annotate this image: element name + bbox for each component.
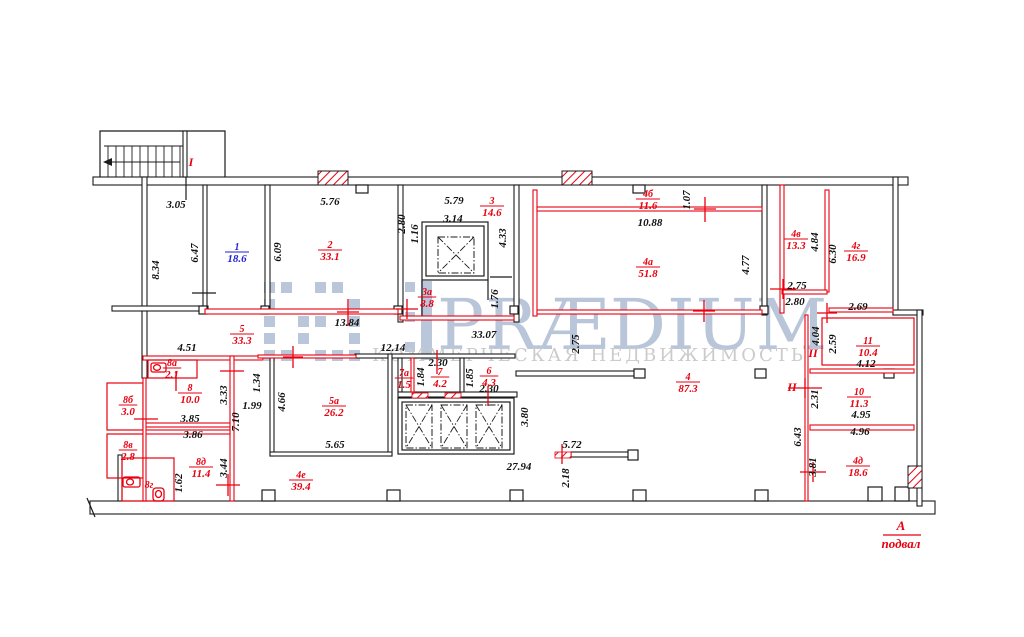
room-label: 487.3 [676,372,700,395]
floor-plan-canvas: PRÆDIUM КОММЕРЧЕСКАЯ НЕДВИЖИМОСТЬ [0,0,1024,637]
dimension-label: 2.80 [396,214,408,235]
room-number: 6 [487,366,492,377]
dimension-label: 4.51 [176,342,196,354]
room-label: 64.3 [480,366,499,389]
dimension-label: 27.94 [506,461,532,473]
dimension-label: 3.86 [182,429,203,441]
dimension-label: 3.80 [519,407,531,428]
dimension-label: 5.76 [320,196,340,208]
room-number: 3а [421,287,432,298]
dimension-label: 5.72 [562,439,582,451]
room-label: 5а26.2 [322,396,346,419]
room-label: 810.0 [178,383,202,406]
section-caption: подвал [882,536,921,551]
room-label: 8в2.8 [119,440,138,463]
dimension-label: 3.85 [179,413,200,425]
room-area: 14.6 [482,207,502,219]
room-number: 8а [167,358,177,369]
room-label: 533.3 [230,324,254,347]
dimension-label: 7.10 [230,412,242,432]
room-label: 1011.3 [847,387,871,410]
dimension-label: 5.65 [325,439,345,451]
room-label: 74.2 [431,367,450,390]
room-area: 26.2 [323,407,344,419]
room-area: 39.4 [290,481,311,493]
room-area: 8.8 [420,298,434,310]
dimension-label: 2.75 [786,280,807,292]
room-number: 8д [196,457,206,468]
room-number: 7а [399,368,409,379]
dimension-label: 1.62 [173,473,185,493]
room-label: 8б3.0 [119,395,138,418]
room-area: 3.0 [120,406,135,418]
dimension-label: 1.34 [251,373,263,393]
room-number: 8в [123,440,133,451]
room-area: 13.3 [786,240,806,252]
room-label: 4г16.9 [844,241,868,264]
room-label: 8г [145,480,154,491]
dimension-label: 4.77 [740,255,752,276]
dimension-label: 2.80 [784,296,805,308]
room-number: 8 [188,383,193,394]
room-label: 118.6 [225,242,249,265]
room-area: 10.0 [180,394,200,406]
dimension-label: 3.81 [807,457,819,477]
room-area: 4.3 [481,377,496,389]
room-area: 33.1 [319,251,339,263]
dimension-label: 2.18 [560,468,572,489]
room-number: 4в [790,229,801,240]
dimension-label: 33.07 [471,329,497,341]
room-number: 3 [489,196,495,207]
room-label: 233.1 [318,240,342,263]
room-number: 4г [851,241,861,252]
dimension-label: 1.16 [409,224,421,244]
room-number: 8г [145,480,154,491]
entry-marker: II [807,346,819,360]
dimension-label: 2.59 [827,334,839,355]
dimension-label: 1.99 [242,400,262,412]
room-area: 33.3 [231,335,252,347]
section-marker: А подвал [882,518,921,551]
dimension-label: 13.84 [335,317,360,329]
dimension-label: 3.44 [218,458,230,479]
entry-marker: I [188,155,195,169]
dimension-label: 3.05 [165,199,186,211]
dimension-label: 4.96 [849,426,870,438]
room-label: 314.6 [480,196,504,219]
room-label: 1110.4 [856,336,880,359]
room-area: 18.6 [848,467,868,479]
room-label: 4д18.6 [846,456,870,479]
room-number: 1 [235,242,240,253]
room-number: 11 [863,336,872,347]
room-area: 11.3 [850,398,869,410]
room-number: 4а [642,257,653,268]
dimension-label: 10.88 [638,217,663,229]
floor-plan-drawing: PRÆDIUM КОММЕРЧЕСКАЯ НЕДВИЖИМОСТЬ [0,0,1024,637]
dimension-label: 4.12 [855,358,876,370]
room-label: 4е39.4 [289,470,313,493]
room-area: 2.8 [120,451,135,463]
room-number: 2 [327,240,333,251]
dimension-label: 3.14 [442,213,463,225]
dimension-label: 1.85 [464,368,476,388]
elevator-bank [398,398,514,454]
dimension-label: 4.33 [497,228,509,249]
dimension-label: 6.43 [792,427,804,447]
room-area: 10.4 [858,347,878,359]
room-number: 4д [852,456,863,467]
toilet-icon [153,488,164,501]
dimension-label: 5.79 [444,195,464,207]
dimension-label: 4.04 [810,326,822,347]
room-number: 4е [295,470,306,481]
dimension-label: 6.09 [272,242,284,262]
dimension-label: 2.31 [809,389,821,409]
dimension-label: 1.07 [681,190,693,210]
room-number: 4 [685,372,691,383]
dimension-label: 3.33 [218,385,230,406]
room-area: 11.4 [192,468,211,480]
room-label: 4а51.8 [636,257,660,280]
room-area: 18.6 [227,253,247,265]
dimension-label: 2.69 [847,301,868,313]
dimension-label: 4.84 [809,232,821,253]
room-area: 16.9 [846,252,866,264]
room-label: 3а8.8 [418,287,437,310]
dimension-label: 6.30 [827,244,839,264]
dimension-label: 2.75 [570,334,582,355]
room-area: 11.6 [639,200,658,212]
room-number: 5а [329,396,339,407]
room-number: 4б [642,189,654,200]
room-label: 4в13.3 [784,229,808,252]
room-area: 2.1 [164,369,179,381]
room-area: 4.2 [432,378,447,390]
room-number: 8б [123,395,134,406]
dimension-label: 4.95 [850,409,871,421]
staircase [100,131,225,177]
stair-direction-arrow [103,158,112,166]
dimension-label: 1.76 [489,289,501,309]
section-letter: А [896,518,906,533]
room-area: 87.3 [678,383,698,395]
room-number: 10 [854,387,864,398]
room-area: 1.5 [397,379,411,391]
dimension-label: 1.84 [415,367,427,387]
room-label: 8д11.4 [189,457,213,480]
room-label: 8а2.1 [163,358,182,381]
entry-marker: II [786,380,798,394]
dimension-label: 12.14 [381,342,406,354]
dimension-label: 6.47 [189,243,201,263]
dimension-label: 8.34 [150,260,162,280]
dimension-label: 4.66 [276,392,288,413]
room-number: 5 [240,324,245,335]
room-area: 51.8 [638,268,658,280]
